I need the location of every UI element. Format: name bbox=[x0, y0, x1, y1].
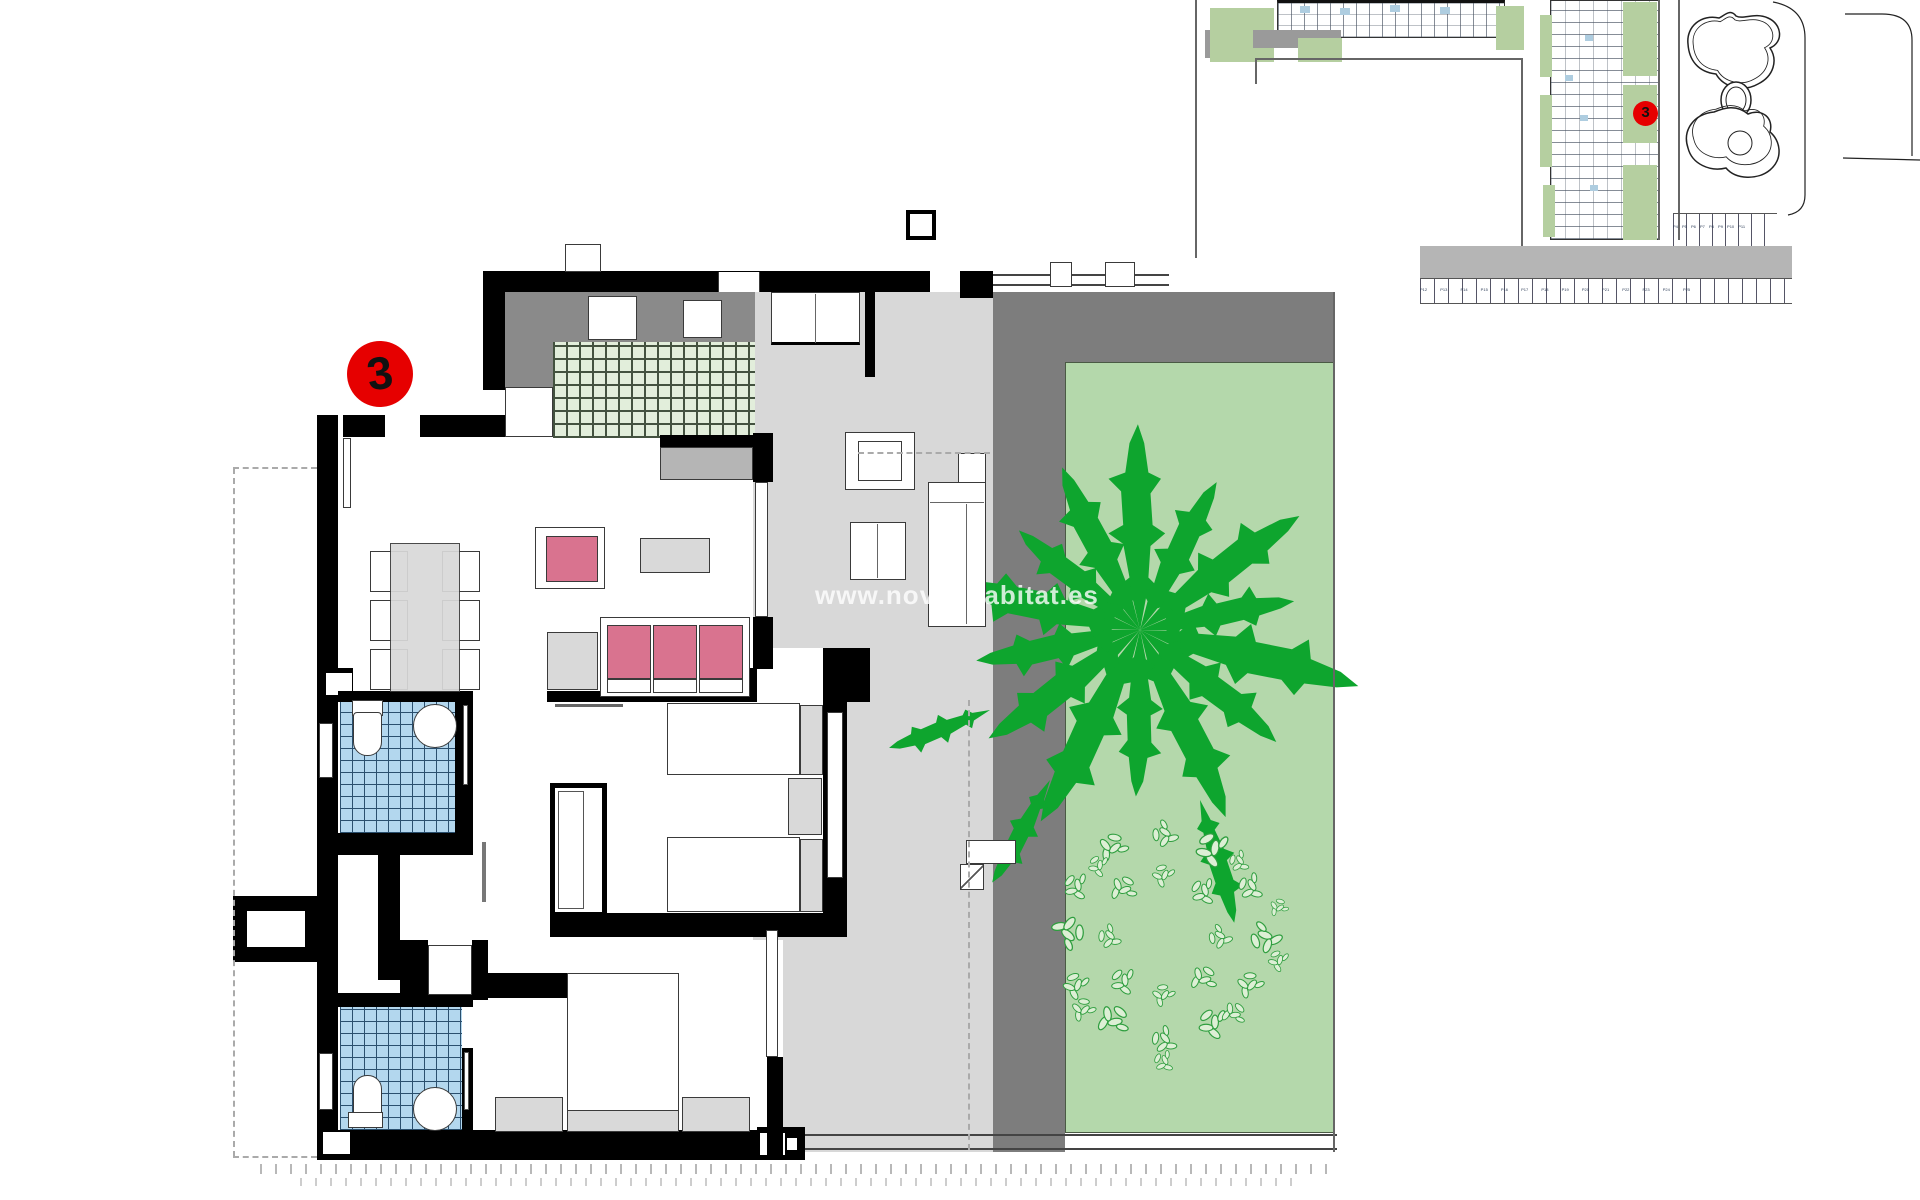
floorplan-image: 3 www.novushabitat.es 3 bbox=[0, 0, 1920, 1200]
garden-gate bbox=[960, 864, 984, 890]
door-leaf-living bbox=[343, 438, 351, 508]
wall-bed-headboard bbox=[488, 973, 567, 998]
bathroom1-mirror bbox=[463, 705, 468, 785]
siteplan-courtyard bbox=[1390, 5, 1400, 12]
wall-bottom-notch bbox=[323, 1132, 350, 1154]
fence-post bbox=[1050, 262, 1072, 287]
unit-number-badge: 3 bbox=[347, 341, 413, 407]
living-terrace-pillar-top bbox=[753, 433, 773, 482]
parking-labels: P4 P5 P6 P7 P8 P9 P10 P11 bbox=[1673, 214, 1777, 229]
kitchen-hob bbox=[683, 300, 722, 338]
ground-texture-band bbox=[260, 1164, 1335, 1174]
bathroom2-mirror bbox=[464, 1052, 469, 1110]
parking-row-b: P12 P13 P14 P15 P16 P17 P18 P19 P20 P21 … bbox=[1420, 278, 1792, 304]
parking-labels: P12 P13 P14 P15 P16 P17 P18 P19 P20 P21 … bbox=[1420, 279, 1792, 292]
washbasin-bathroom2 bbox=[413, 1087, 457, 1131]
washbasin-bathroom1 bbox=[413, 704, 457, 748]
wall-bedroom2-north-b bbox=[472, 940, 488, 1000]
toilet-tank-bathroom2 bbox=[348, 1112, 383, 1128]
siteplan-pool-and-roads bbox=[1660, 0, 1920, 230]
door-top bbox=[718, 272, 760, 292]
pergola-pillar bbox=[865, 292, 875, 377]
parking-row-a: P4 P5 P6 P7 P8 P9 P10 P11 bbox=[1673, 213, 1777, 250]
door-bedroom2-north bbox=[428, 945, 472, 995]
wall-kitchen-ledge-a bbox=[343, 415, 385, 437]
bench bbox=[495, 1097, 563, 1132]
sofa-seat bbox=[699, 679, 743, 693]
siteplan-courtyard bbox=[1300, 6, 1310, 13]
outdoor-armchair-cushion bbox=[858, 441, 902, 481]
sofa-seat bbox=[653, 679, 697, 693]
wall-bottom bbox=[317, 1130, 757, 1160]
toilet-bathroom2 bbox=[353, 1075, 382, 1117]
siteplan-courtyard bbox=[1585, 35, 1593, 41]
toilet-bathroom1 bbox=[353, 712, 382, 756]
wall-bedroom1-east-top bbox=[823, 648, 870, 702]
threshold-line bbox=[555, 704, 623, 707]
side-table bbox=[640, 538, 710, 573]
siteplan-unit-badge: 3 bbox=[1633, 101, 1658, 126]
wall-top bbox=[483, 271, 930, 292]
single-bed bbox=[667, 703, 800, 775]
property-boundary-dashed bbox=[233, 467, 317, 471]
sofa-cushion bbox=[699, 625, 743, 679]
siteplan-green bbox=[1496, 6, 1524, 50]
terrace-planter-divider bbox=[815, 294, 816, 343]
nightstand bbox=[788, 778, 822, 835]
armchair-cushion bbox=[546, 536, 598, 582]
sofa-side-table bbox=[547, 632, 598, 690]
door-bathroom1 bbox=[319, 723, 333, 778]
wall-southeast bbox=[767, 1057, 783, 1160]
sliding-door-living bbox=[755, 482, 768, 617]
window-bedroom2 bbox=[766, 930, 778, 1057]
unit-number: 3 bbox=[363, 340, 397, 407]
terrace-door-panel-small bbox=[787, 1138, 797, 1150]
terrace-dashed-line bbox=[858, 452, 990, 456]
sofa-seat bbox=[607, 679, 651, 693]
sofa-cushion bbox=[607, 625, 651, 679]
single-bed bbox=[667, 837, 800, 912]
bench bbox=[682, 1097, 750, 1132]
living-terrace-pillar-bottom bbox=[753, 617, 773, 669]
corner-post bbox=[906, 210, 936, 240]
siteplan-plaza-edge bbox=[1255, 58, 1257, 84]
dining-table bbox=[390, 543, 460, 692]
siteplan-courtyard bbox=[1580, 115, 1588, 121]
ground-cover-plants bbox=[1040, 760, 1340, 1090]
terrace-dashed-boundary bbox=[968, 700, 972, 1150]
wall-kitchen-ledge-b bbox=[420, 415, 505, 437]
siteplan-green bbox=[1543, 185, 1555, 237]
siteplan-courtyard bbox=[1340, 8, 1350, 15]
parking-apron bbox=[1420, 246, 1792, 278]
property-boundary-dashed bbox=[233, 468, 237, 1157]
garden-gate-top bbox=[966, 840, 1016, 864]
outdoor-loveseat-divider bbox=[877, 524, 878, 578]
bed-pillow bbox=[800, 839, 823, 912]
siteplan-plaza-edge bbox=[1521, 58, 1523, 248]
sun-lounger-headrest bbox=[930, 502, 984, 503]
double-bed-foot bbox=[567, 1110, 679, 1132]
sofa-cushion bbox=[653, 625, 697, 679]
kitchen-counter-left bbox=[505, 292, 553, 387]
kitchen-tiled-floor bbox=[553, 342, 755, 438]
wall-corridor-east bbox=[378, 855, 400, 980]
wall-upper-left bbox=[483, 271, 505, 390]
garden-fence-top bbox=[993, 274, 1169, 286]
outdoor-loveseat bbox=[850, 522, 906, 580]
kitchen-sink bbox=[588, 296, 637, 340]
wall-bedroom2-north-a bbox=[400, 940, 428, 1000]
door-leaf-bedroom2 bbox=[482, 842, 486, 902]
kitchen-peninsula-edge bbox=[660, 435, 753, 447]
siteplan-green bbox=[1540, 15, 1552, 77]
siteplan-green bbox=[1623, 165, 1657, 240]
wall-bathroom1-south bbox=[338, 833, 473, 855]
vent-box bbox=[565, 244, 601, 272]
wall-bathroom2-north bbox=[317, 993, 473, 1007]
door-bathroom2 bbox=[319, 1053, 333, 1110]
wardrobe-door bbox=[558, 791, 584, 909]
siteplan-courtyard bbox=[1565, 75, 1573, 81]
kitchen-fridge bbox=[505, 387, 553, 437]
siteplan-courtyard bbox=[1590, 185, 1598, 191]
siteplan-unit-number: 3 bbox=[1641, 104, 1649, 121]
siteplan-green bbox=[1623, 2, 1657, 76]
outdoor-side-table bbox=[958, 453, 986, 483]
ground-texture-band bbox=[300, 1178, 1300, 1186]
fence-post bbox=[1105, 262, 1135, 287]
double-bed bbox=[567, 973, 679, 1132]
window-bedroom1 bbox=[827, 712, 843, 878]
wall-west-upper bbox=[317, 415, 338, 702]
bed-pillow bbox=[800, 705, 823, 775]
property-boundary-dashed bbox=[233, 1156, 317, 1160]
kitchen-peninsula bbox=[660, 447, 753, 480]
siteplan-plaza-edge bbox=[1255, 58, 1523, 60]
garden-right-boundary bbox=[1333, 292, 1335, 1152]
siteplan-green bbox=[1540, 95, 1552, 167]
siteplan-left-boundary bbox=[1195, 0, 1197, 258]
fence-end-post bbox=[960, 271, 993, 298]
siteplan-courtyard bbox=[1440, 7, 1450, 14]
entrance-door-slot bbox=[247, 911, 305, 947]
watermark: www.novushabitat.es bbox=[815, 580, 1099, 611]
